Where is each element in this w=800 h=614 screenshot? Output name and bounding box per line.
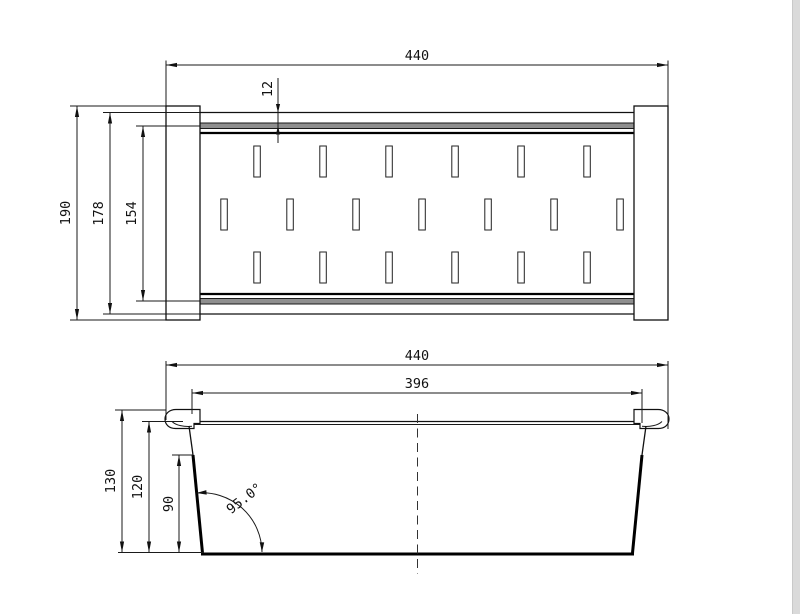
- dim-label-wall-angle: 95.0°: [224, 480, 266, 518]
- top-view: 440 190 178 154: [58, 48, 668, 320]
- dim-label-overall-length-top: 440: [405, 48, 429, 64]
- dim-label-overall-length-side: 440: [405, 348, 429, 364]
- dim-label-body-width: 178: [91, 201, 107, 225]
- dim-label-wall-height: 90: [161, 496, 177, 512]
- drain-slot: [287, 199, 294, 230]
- drain-slot: [485, 199, 492, 230]
- drain-slot: [254, 146, 260, 177]
- dim-label-rim-height: 120: [130, 475, 146, 499]
- drain-slot: [320, 146, 327, 177]
- drain-slot: [254, 252, 260, 283]
- end-cap-left: [166, 106, 200, 320]
- wall-upper-right: [642, 426, 646, 455]
- dim-label-inner-length: 396: [405, 376, 429, 392]
- drain-slot: [452, 252, 459, 283]
- drain-slot: [386, 146, 393, 177]
- drain-slot: [320, 252, 327, 283]
- drain-slot: [419, 199, 426, 230]
- arrowhead: [276, 104, 280, 113]
- drain-slot: [518, 146, 525, 177]
- dim-label-overall-height: 130: [103, 469, 119, 493]
- wall-lower-right: [633, 455, 643, 553]
- side-view: 440 396 130 120 90: [103, 348, 669, 574]
- end-cap-right: [634, 106, 668, 320]
- bottom-rail-bar: [200, 299, 634, 304]
- drain-slot: [221, 199, 228, 230]
- drain-slot: [584, 252, 591, 283]
- top-rail-bar: [200, 124, 634, 129]
- drain-slot: [551, 199, 558, 230]
- drain-slot: [452, 146, 459, 177]
- drain-slot: [386, 252, 393, 283]
- hang-hook-left: [165, 410, 200, 429]
- drain-slot: [353, 199, 360, 230]
- hang-hook-right: [634, 410, 669, 429]
- dim-label-rail-offset: 12: [260, 81, 276, 97]
- drain-slot: [617, 199, 624, 230]
- arrowhead: [260, 542, 265, 552]
- wall-lower-left: [193, 455, 203, 553]
- drawing-canvas: 440 190 178 154: [0, 0, 800, 614]
- drain-slot: [584, 146, 591, 177]
- page-edge-strip: [793, 0, 800, 614]
- wall-upper-left: [189, 426, 193, 455]
- drain-slot: [518, 252, 525, 283]
- technical-drawing-page: 440 190 178 154: [0, 0, 800, 614]
- dim-label-plate-width: 154: [124, 201, 140, 225]
- dim-label-overall-width: 190: [58, 201, 74, 225]
